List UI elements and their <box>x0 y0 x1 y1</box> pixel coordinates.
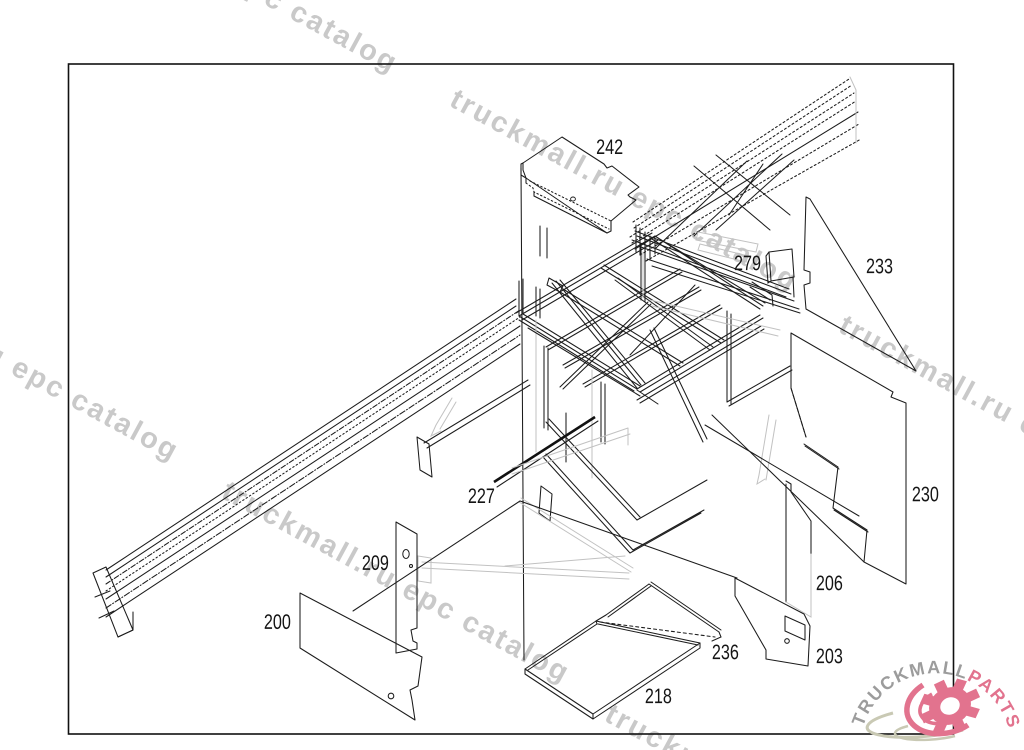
svg-text:242: 242 <box>596 136 623 159</box>
svg-text:236: 236 <box>712 641 739 664</box>
svg-text:200: 200 <box>264 611 291 634</box>
svg-text:209: 209 <box>362 552 389 575</box>
svg-text:218: 218 <box>645 685 672 708</box>
svg-text:233: 233 <box>866 255 893 278</box>
svg-text:203: 203 <box>816 645 843 668</box>
svg-text:279: 279 <box>734 252 761 275</box>
svg-text:230: 230 <box>912 483 939 506</box>
svg-text:206: 206 <box>816 572 843 595</box>
svg-text:227: 227 <box>468 485 495 508</box>
